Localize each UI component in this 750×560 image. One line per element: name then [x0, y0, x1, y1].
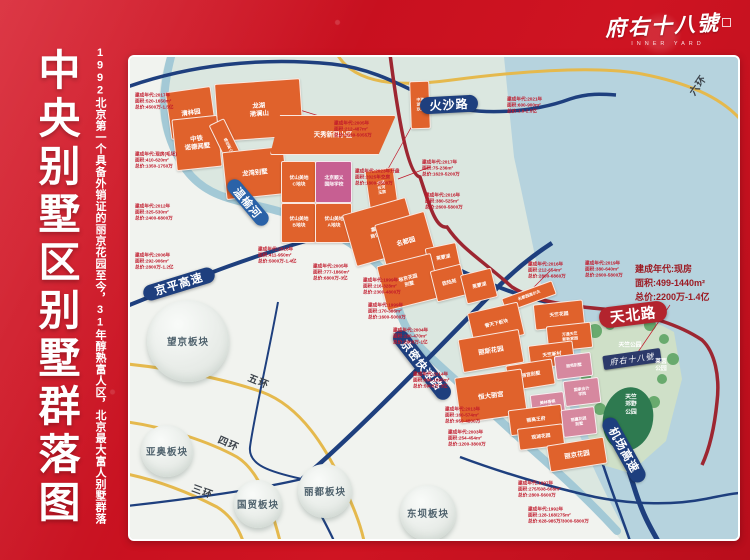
info-label: 建成年代:2016年 面积:411-950m² 总价:5000万-1.4亿 [258, 247, 297, 265]
info-label: 建成年代:2019年 面积:380-640m² 总价:2600-5800万 [585, 261, 623, 279]
district-yaao: 亚奥板块 [141, 425, 193, 477]
info-label: 建成年代:2023年开盘 面积:2025年交房 总价:1800-3500万 [355, 169, 400, 187]
brand-logo-text: 府右十八號 [604, 7, 720, 43]
district-wangjing: 望京板块 [147, 300, 229, 382]
poster-subtitle: 1992北京第一个具备外销证的丽京花园至今，31年醇熟富人区，北京最大富人别墅群… [92, 47, 108, 539]
info-label: 建成年代:2016年 面积:212-654m² 总价:2800-6860万 [528, 262, 566, 280]
brand-logo: 府右十八號 INNER YARD [598, 10, 738, 47]
info-label: 建成年代:2012年 面积:325-530m² 总价:2400-6800万 [135, 204, 173, 222]
info-label: 建成年代:2021年 面积:600-900m² 总价:1.9-2.5亿 [507, 97, 542, 115]
map-canvas: 望京板块 亚奥板块 国贸板块 丽都板块 东坝板块 清林园 龙湖 滟澜山 中铁 诺… [128, 55, 740, 541]
villa-block: 国家会计 学院 [563, 377, 602, 407]
info-label: 建成年代:1997年 面积:275/508-608m² 总价:2800-5600… [518, 481, 561, 499]
info-label: 建成年代:2016年 面积:380-525m² 总价:2600-5800万 [425, 193, 463, 211]
seal-icon [722, 18, 731, 27]
villa-block: 丽嘉花园 别墅 [560, 406, 597, 438]
park-label-jiaoye: 天竺 郊野 公园 [616, 389, 646, 422]
info-label: 建成年代:2003年 面积:254-454m² 总价:1200-3800万 [448, 430, 486, 448]
info-label: 建成年代:2005年 面积:777-1860m² 总价:6800万-3亿 [313, 264, 349, 282]
road-label-huosha: 火沙路 [420, 94, 479, 114]
villa-block: 优山美地 B地块 [281, 203, 316, 243]
poster: 中央别墅区别墅群落图 1992北京第一个具备外销证的丽京花园至今，31年醇熟富人… [0, 0, 750, 560]
info-label: 建成年代:1999年 面积:170-386m² 总价:1600-5000万 [368, 303, 406, 321]
info-label: 建成年代:2004年 面积:280-470m² 总价:2800万-1亿 [393, 328, 428, 346]
villa-block: 优山美地 C地块 [281, 161, 316, 203]
page-title: 中央别墅区别墅群落图 [26, 48, 87, 543]
info-label: 建成年代:2013年 面积:160-574m² 总价:950-4800万 [445, 407, 480, 425]
info-label: 建成年代:2006年 面积:292-906m² 总价:2800万-1.2亿 [135, 253, 174, 271]
district-dongba: 东坝板块 [400, 485, 456, 541]
district-guomao: 国贸板块 [234, 480, 282, 528]
district-lidu: 丽都板块 [298, 464, 352, 518]
park-label-laiyin: 莱茵 公园 [650, 355, 672, 377]
info-label: 建成年代:1999年 面积:216-328m² 总价:2300-4800万 [363, 278, 401, 296]
info-label: 建成年代:2017年 面积:75-236m² 总价:1620-5200万 [422, 160, 460, 178]
info-label: 建成年代:1992年 面积:128-168/275m² 总价:628-985万/… [528, 507, 589, 525]
info-label: 建成年代:2014年 面积:686-1095m² 总价:5900万-3亿 [413, 372, 449, 390]
villa-block-school: 北京顺义 国际学校 [315, 161, 352, 203]
info-label: 建成年代:现房(毛坯) 面积:410-620m² 总价:1350-1750万 [135, 152, 177, 170]
villa-block: 丽苑别墅 [554, 352, 594, 380]
project-stats: 建成年代:现房 面积:499-1440m² 总价:2200万-1.4亿 [635, 263, 710, 305]
info-label: 建成年代:2017年 面积:520-1650m² 总价:4500万-1.5亿 [135, 93, 174, 111]
info-label: 建成年代:2005年 面积:212-487m² 总价:2030-5055万 [334, 121, 372, 139]
villa-block: 天秀新园小区 [270, 115, 396, 155]
